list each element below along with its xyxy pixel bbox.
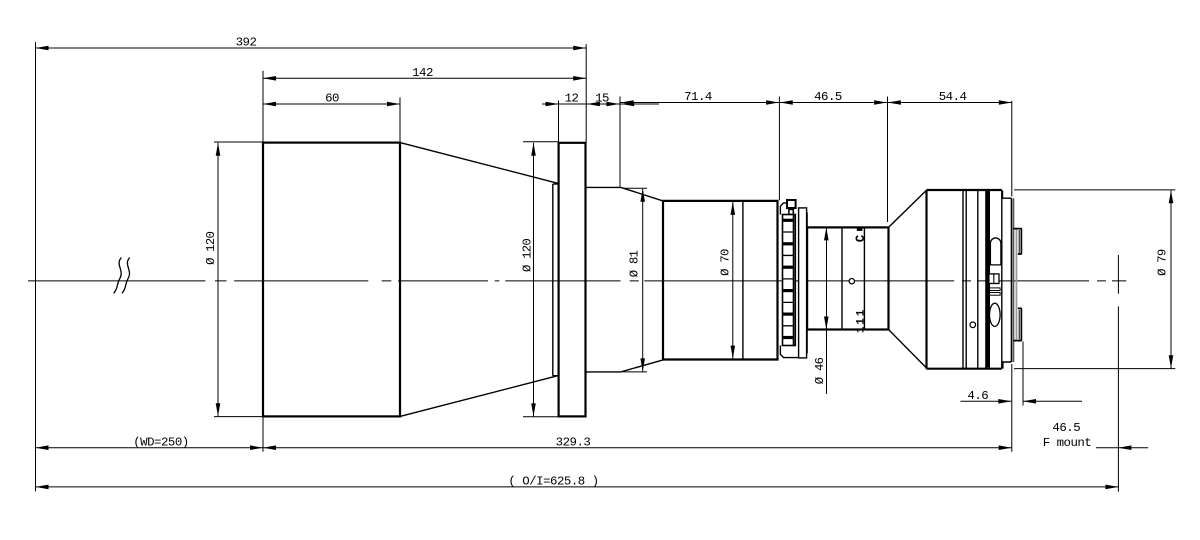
svg-text:F mount: F mount	[1043, 436, 1092, 450]
svg-text:329.3: 329.3	[556, 435, 591, 449]
svg-text:C: C	[854, 234, 868, 242]
svg-text:46.5: 46.5	[1052, 421, 1080, 435]
svg-text:54.4: 54.4	[939, 90, 967, 104]
svg-text:Ø 46: Ø 46	[813, 357, 827, 384]
svg-text:(WD=250): (WD=250)	[133, 435, 189, 449]
svg-text:Ø 120: Ø 120	[204, 231, 218, 264]
svg-text:46.5: 46.5	[814, 90, 842, 104]
svg-text:15: 15	[595, 92, 609, 106]
svg-text:142: 142	[412, 66, 433, 80]
svg-text:Ø 79: Ø 79	[1156, 249, 1170, 276]
svg-text:12: 12	[565, 92, 579, 106]
svg-text:Ø 81: Ø 81	[628, 250, 642, 277]
svg-text:Ø 70: Ø 70	[719, 249, 733, 276]
svg-text:( O/I=625.8 ): ( O/I=625.8 )	[508, 474, 598, 488]
svg-text:Ø 120: Ø 120	[521, 239, 535, 272]
svg-text:4.6: 4.6	[967, 389, 988, 403]
svg-text:392: 392	[236, 36, 257, 50]
svg-text:111: 111	[855, 308, 867, 333]
svg-text:60: 60	[325, 92, 339, 106]
svg-text:71.4: 71.4	[684, 90, 712, 104]
